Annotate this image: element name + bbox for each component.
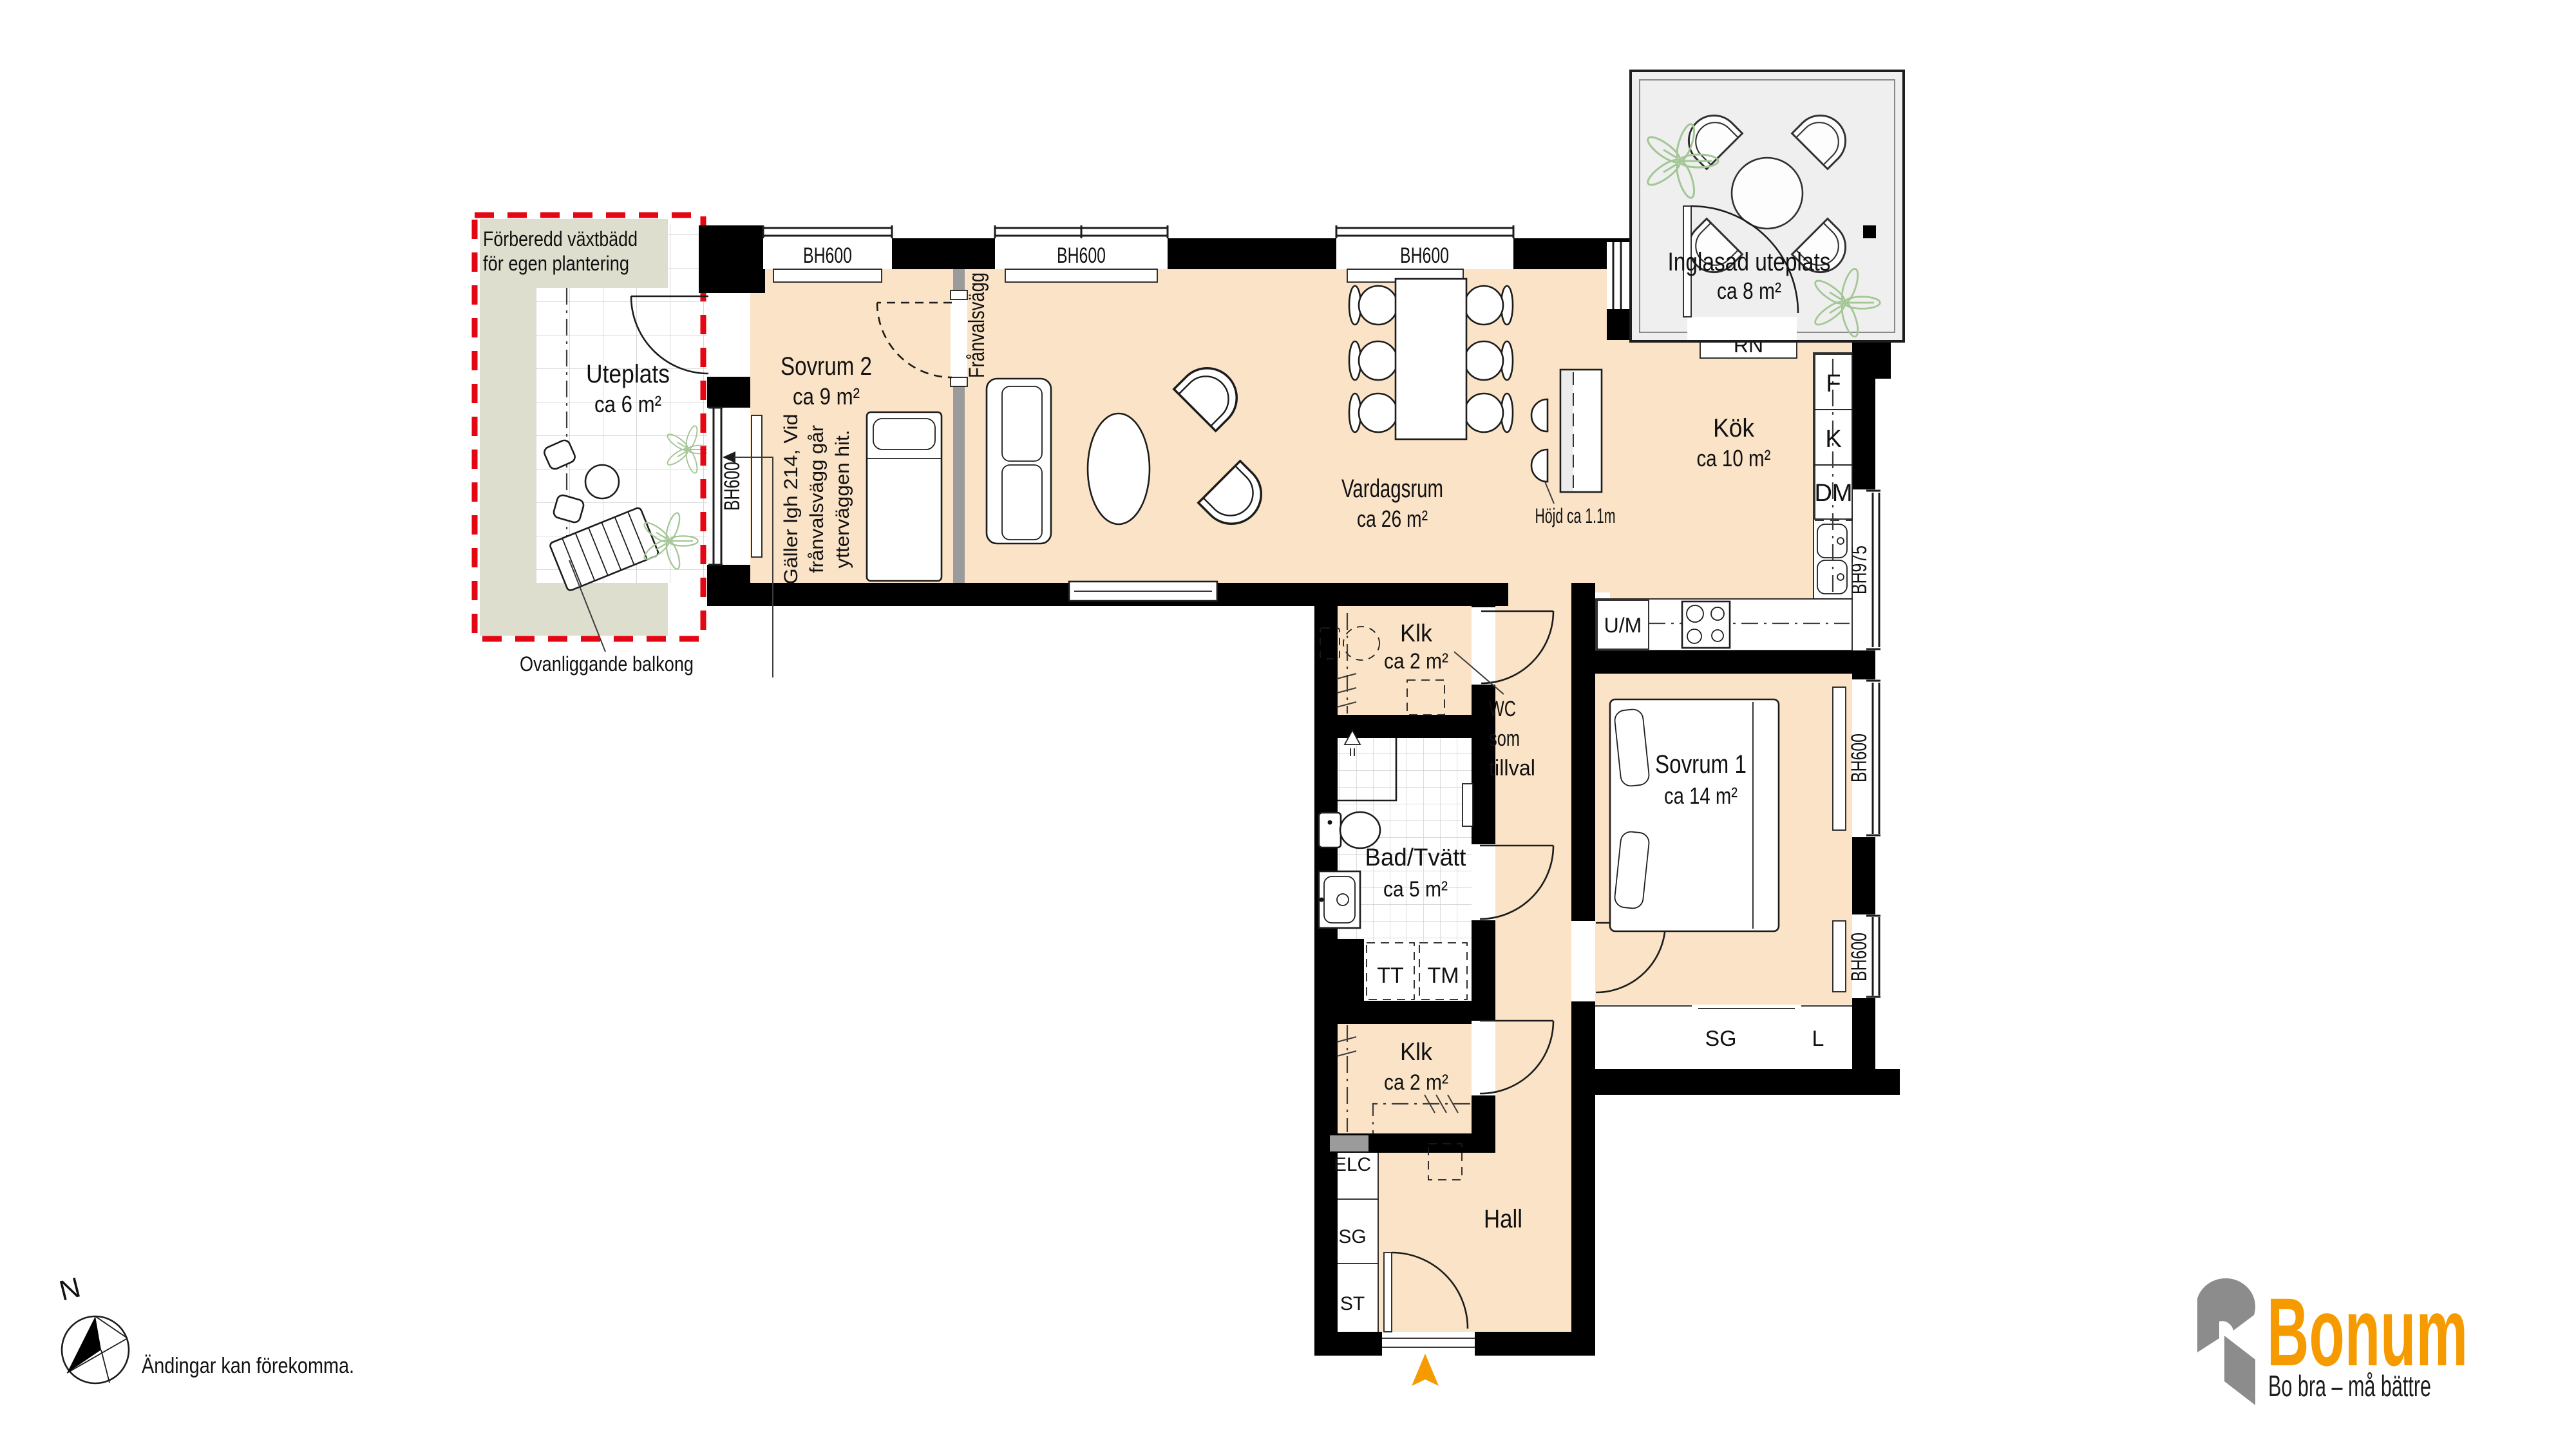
coffee-table <box>1088 413 1150 524</box>
sovrum1-area: ca 14 m² <box>1664 782 1738 809</box>
klk1-area: ca 2 m² <box>1384 649 1448 674</box>
bath-niche <box>1463 784 1473 826</box>
svg-text:BH600: BH600 <box>720 462 744 511</box>
galler-note-line3: ytterväggen hit. <box>832 430 853 569</box>
svg-text:BH600: BH600 <box>1847 933 1871 981</box>
dining-set <box>1349 279 1513 439</box>
hojd-note: Höjd ca 1.1m <box>1535 504 1616 527</box>
sg-label: SG <box>1338 1226 1366 1247</box>
window-bh600-sovrum1-lower: BH600 <box>1833 914 1882 998</box>
window-bh600-vardagsrum-top: BH600 <box>995 223 1168 282</box>
freezer-label: K <box>1825 426 1841 453</box>
bonum-logo-icon <box>2197 1278 2257 1408</box>
bath-sink <box>1319 871 1360 928</box>
toilet <box>1319 812 1380 848</box>
sovrum2-area: ca 9 m² <box>793 383 860 410</box>
franvalsvagg-label: Frånvalsvägg <box>965 272 989 378</box>
bed-sovrum2 <box>867 412 942 581</box>
dishwasher-label: DM <box>1814 480 1852 507</box>
compass-icon: N <box>56 1271 129 1383</box>
hall-label: Hall <box>1484 1205 1522 1233</box>
floorplan-svg: Förberedd växtbädd för egen plantering U… <box>0 0 2576 1449</box>
disclaimer-text: Ändingar kan förekomma. <box>142 1354 354 1378</box>
badtvatt-area: ca 5 m² <box>1383 877 1448 902</box>
tv-bench <box>1069 582 1217 601</box>
sovrum1-label: Sovrum 1 <box>1655 750 1747 779</box>
svg-text:BH600: BH600 <box>1847 734 1871 782</box>
fridge-label: F <box>1826 370 1841 397</box>
uteplats-area: ca 6 m² <box>594 391 661 417</box>
window-bh600-sovrum2-top: BH600 <box>763 223 892 282</box>
tm-label: TM <box>1427 963 1459 988</box>
vardagsrum-area: ca 26 m² <box>1357 506 1428 532</box>
svg-text:BH600: BH600 <box>1057 243 1106 268</box>
bed-sovrum1 <box>1610 699 1779 931</box>
vaxtbadd-note-line1: Förberedd växtbädd <box>483 227 638 251</box>
galler-note-line2: frånvalsvägg går <box>806 425 828 573</box>
klk1-label: Klk <box>1400 620 1433 647</box>
floorplan-page: Förberedd växtbädd för egen plantering U… <box>0 0 2576 1449</box>
sovrum2-label: Sovrum 2 <box>781 352 872 381</box>
sofa <box>987 379 1051 544</box>
kok-area: ca 10 m² <box>1697 445 1771 471</box>
st-label: ST <box>1340 1293 1365 1314</box>
wardrobe-l-label: L <box>1812 1027 1824 1051</box>
balkong-note: Ovanliggande balkong <box>520 652 694 676</box>
klk2-area: ca 2 m² <box>1384 1070 1448 1095</box>
bonum-logo: Bonum Bo bra – må bättre <box>2197 1278 2468 1408</box>
bonum-tagline-text: Bo bra – må bättre <box>2268 1369 2431 1403</box>
kitchen-counter-east: F K DM <box>1814 353 1853 599</box>
kok-label: Kök <box>1713 414 1755 442</box>
uteplats-label: Uteplats <box>586 360 670 388</box>
svg-text:BH600: BH600 <box>803 243 852 268</box>
window-bh600-west: BH600 <box>707 408 762 565</box>
glazed-patio: Inglasad uteplats ca 8 m² <box>1631 71 1904 341</box>
uteplats-patio: Förberedd växtbädd för egen plantering U… <box>475 215 712 676</box>
elc-label: ELC <box>1334 1154 1371 1175</box>
wardrobe-sg-label: SG <box>1705 1027 1736 1051</box>
klk2-label: Klk <box>1400 1039 1433 1066</box>
inglasad-area: ca 8 m² <box>1717 278 1781 304</box>
wc-note-line2: som <box>1489 726 1520 751</box>
wc-note-line1: WC <box>1489 697 1516 721</box>
svg-text:BH600: BH600 <box>1400 243 1449 268</box>
stove <box>1682 601 1730 648</box>
badtvatt-label: Bad/Tvätt <box>1365 844 1466 871</box>
vardagsrum-label: Vardagsrum <box>1341 475 1443 503</box>
oven-micro-label: U/M <box>1604 614 1642 637</box>
vaxtbadd-note-line2: för egen plantering <box>483 252 629 275</box>
elc-unit <box>1330 1135 1368 1151</box>
compass-n-label: N <box>56 1271 84 1307</box>
wc-note-line3: tillval <box>1489 756 1535 781</box>
tt-label: TT <box>1377 963 1404 988</box>
kitchen-counter-south: U/M <box>1596 599 1852 650</box>
entrance-arrow-icon <box>1412 1354 1439 1386</box>
inglasad-label: Inglasad uteplats <box>1668 248 1831 276</box>
window-bh600-sovrum1-upper: BH600 <box>1833 679 1882 837</box>
galler-note-line1: Gäller lgh 214, Vid <box>781 414 802 585</box>
